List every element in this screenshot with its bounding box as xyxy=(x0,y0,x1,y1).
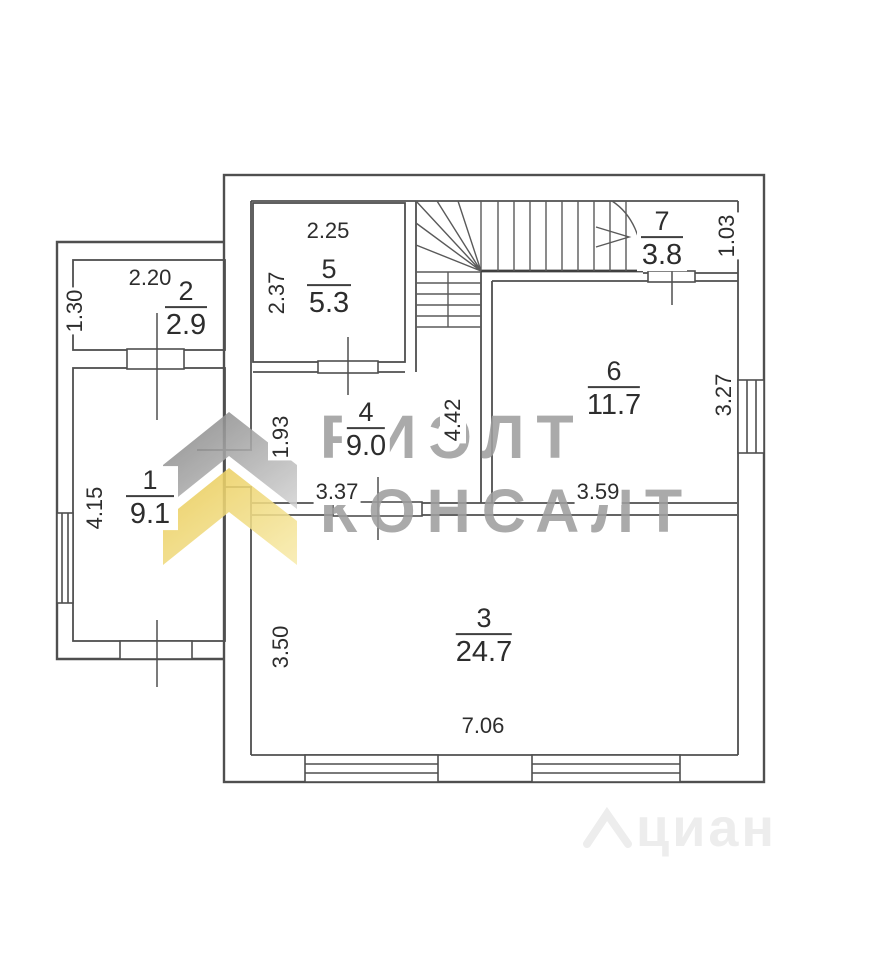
room-number: 4 xyxy=(346,398,386,426)
room-area: 24.7 xyxy=(456,637,512,667)
dimension-label-room5-height: 2.37 xyxy=(264,270,290,317)
dimension-label-room6-width: 3.59 xyxy=(575,479,622,505)
dimension-label-room4-right: 4.42 xyxy=(440,397,466,444)
room-area: 11.7 xyxy=(587,390,641,420)
room-label-rule xyxy=(347,427,385,429)
room-label-1: 1 9.1 xyxy=(122,466,178,530)
dimension-label-room1-height: 4.15 xyxy=(82,485,108,532)
room-label-rule xyxy=(307,284,351,286)
room-label-5: 5 5.3 xyxy=(303,255,355,319)
dimension-label-room3-width: 7.06 xyxy=(460,713,507,739)
dimension-label-room3-height: 3.50 xyxy=(268,624,294,671)
dimension-label-room7-height: 1.03 xyxy=(714,213,740,260)
room-label-7: 7 3.8 xyxy=(637,207,687,271)
dimension-label-room4-width: 3.37 xyxy=(314,479,361,505)
room-number: 3 xyxy=(456,604,512,632)
room-number: 5 xyxy=(307,255,351,283)
room-area: 9.0 xyxy=(346,431,386,461)
room-number: 7 xyxy=(641,207,683,235)
room-label-rule xyxy=(456,633,512,635)
room-number: 6 xyxy=(587,357,641,385)
dimension-label-room2-height: 1.30 xyxy=(62,288,88,335)
room-label-rule xyxy=(641,236,683,238)
room-area: 5.3 xyxy=(307,288,351,318)
room-label-rule xyxy=(126,495,174,497)
room-label-rule xyxy=(588,386,640,388)
room-area: 2.9 xyxy=(165,310,207,340)
room-label-6: 6 11.7 xyxy=(583,357,645,421)
room-label-rule xyxy=(165,306,207,308)
room-area: 9.1 xyxy=(126,499,174,529)
floor-plan-canvas: РИЭЛТ КОНСАЛТ циан 1 9.1 2 2.9 3 24.7 4 … xyxy=(0,0,889,960)
dimension-label-room5-width: 2.25 xyxy=(305,218,352,244)
dimension-label-room6-height: 3.27 xyxy=(711,372,737,419)
brand-watermark-line2: КОНСАЛТ xyxy=(320,481,693,542)
room-label-3: 3 24.7 xyxy=(452,604,516,668)
room-number: 1 xyxy=(126,466,174,494)
room-label-4: 4 9.0 xyxy=(342,398,390,462)
room-area: 3.8 xyxy=(641,240,683,270)
dimension-label-room2-width: 2.20 xyxy=(127,265,174,291)
dimension-label-room4-left: 1.93 xyxy=(268,414,294,461)
